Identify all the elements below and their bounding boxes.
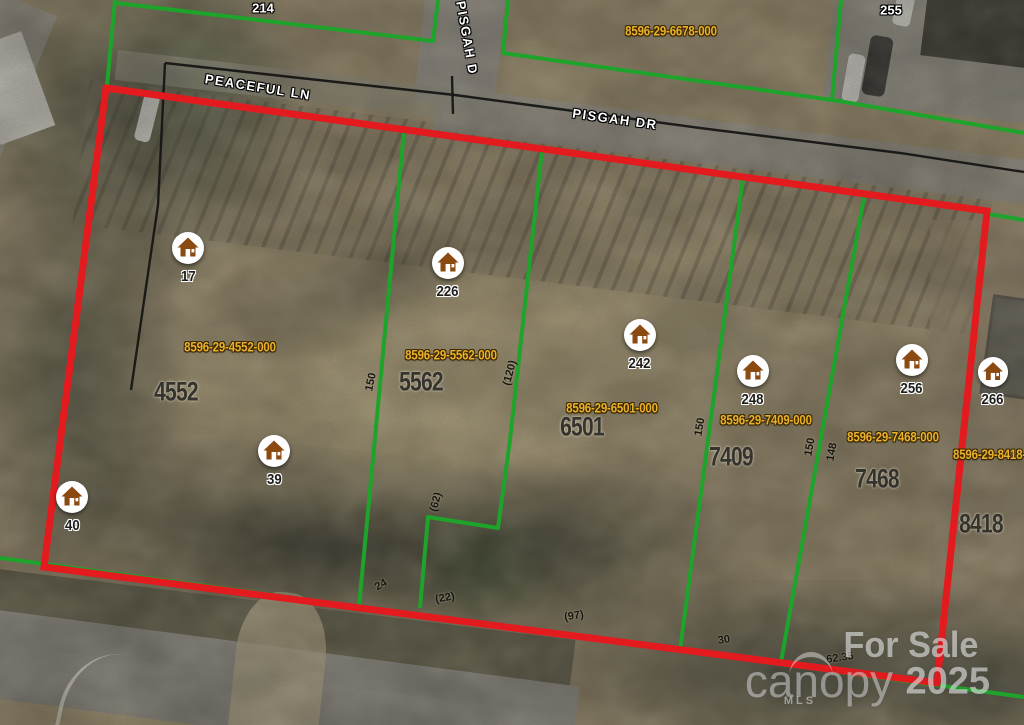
parcel-boundary-line — [503, 0, 841, 100]
boundary-overlay — [0, 0, 1024, 725]
parcel-boundary-line — [116, 0, 438, 41]
aerial-parcel-map: PEACEFUL LN PISGAH D PISGAH DR 214 255 8… — [0, 0, 1024, 725]
parcel-boundary-line — [781, 197, 864, 662]
parcel-boundary-line — [107, 0, 115, 86]
road-centerline-stub — [452, 76, 453, 114]
survey-line — [131, 63, 165, 390]
parcel-boundary-line — [359, 131, 404, 607]
parcel-boundary-line — [420, 150, 542, 608]
parcel-boundary-line — [833, 100, 1024, 133]
parcel-boundary-line — [680, 178, 743, 650]
parcel-boundary-line — [988, 214, 1024, 220]
